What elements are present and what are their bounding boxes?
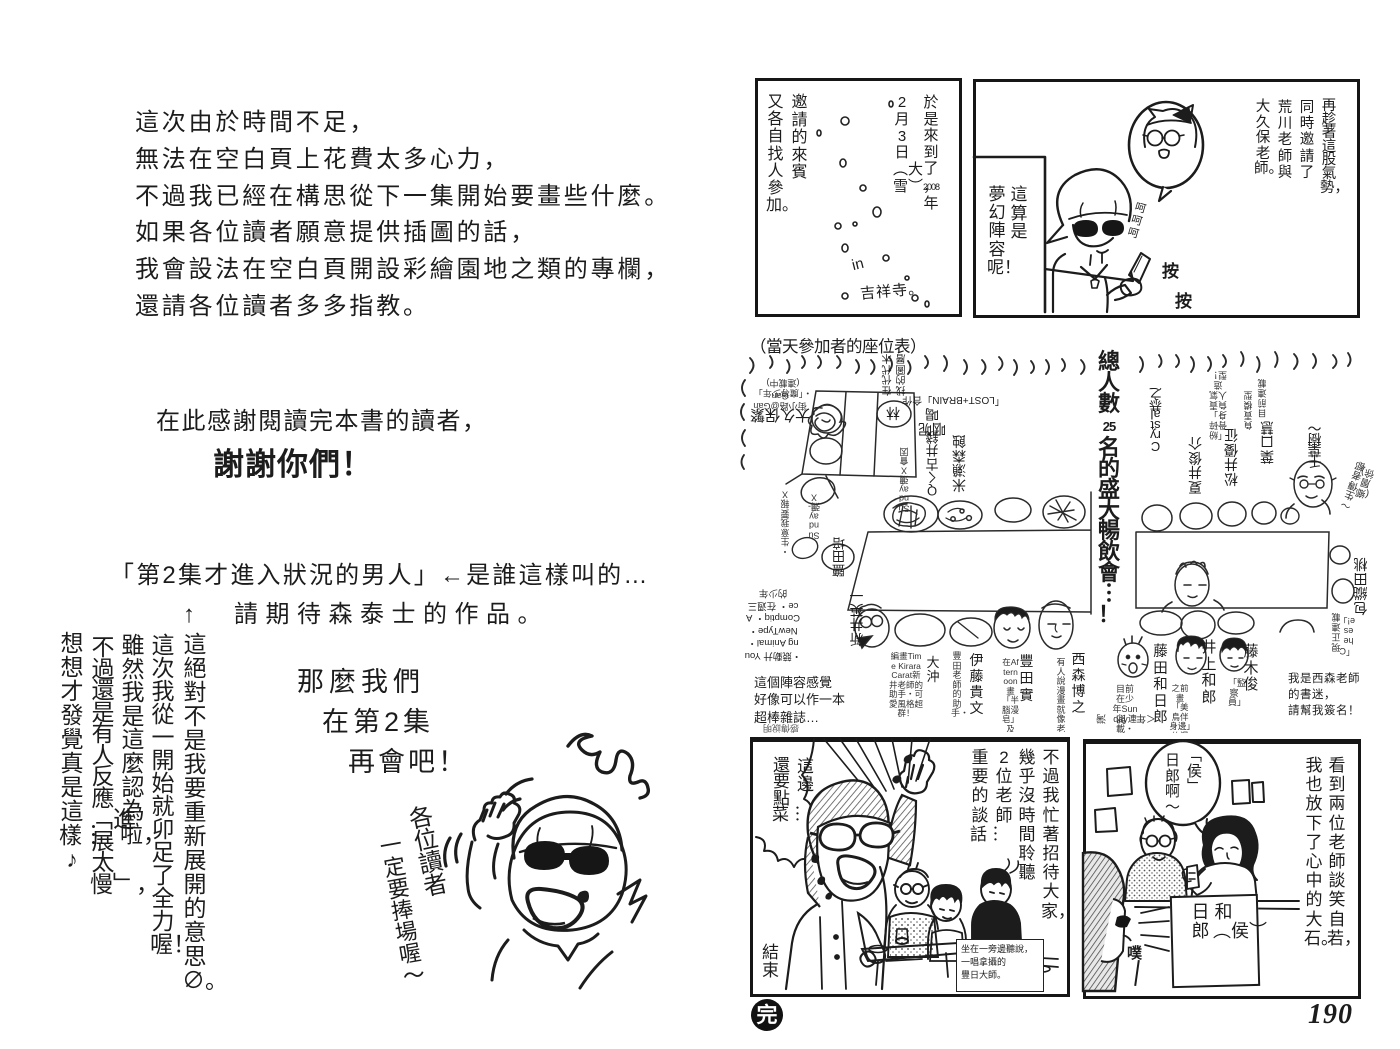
svg-text:完: 完 (757, 1003, 778, 1027)
